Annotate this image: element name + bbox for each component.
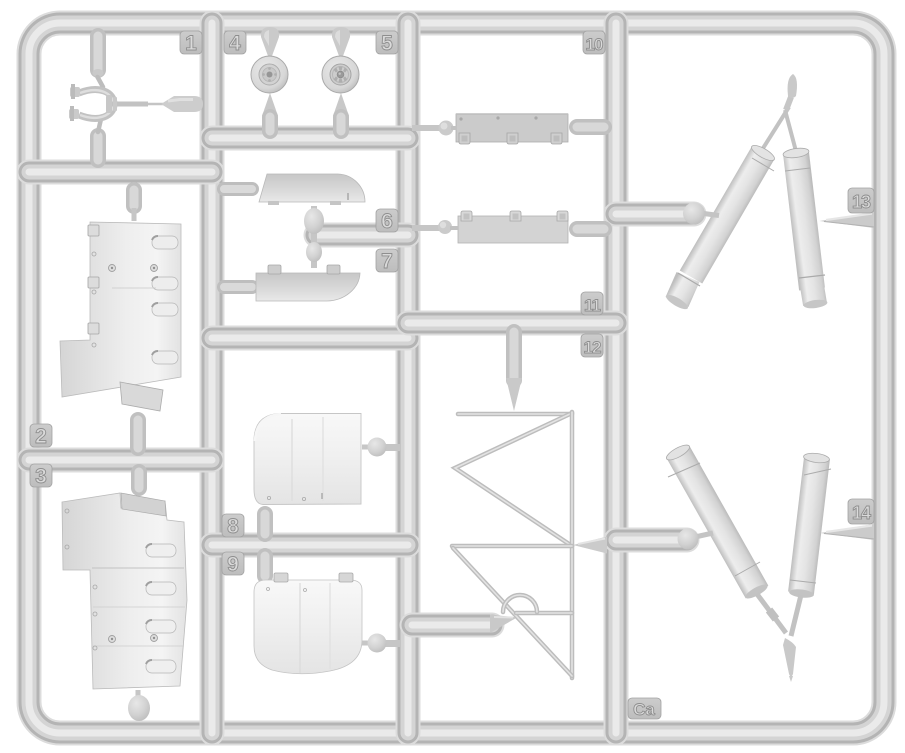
- svg-text:5: 5: [381, 32, 393, 55]
- svg-text:11: 11: [584, 296, 601, 315]
- svg-text:2: 2: [35, 425, 47, 448]
- svg-text:7: 7: [381, 250, 393, 273]
- svg-text:12: 12: [584, 338, 601, 357]
- svg-text:Ca: Ca: [633, 700, 655, 719]
- svg-text:6: 6: [381, 210, 393, 233]
- svg-text:13: 13: [852, 192, 871, 212]
- svg-text:10: 10: [586, 35, 603, 54]
- svg-text:14: 14: [852, 503, 871, 523]
- svg-text:1: 1: [185, 32, 197, 55]
- svg-text:8: 8: [227, 515, 239, 538]
- svg-text:9: 9: [227, 553, 239, 576]
- svg-text:3: 3: [35, 465, 47, 488]
- svg-text:4: 4: [229, 32, 241, 55]
